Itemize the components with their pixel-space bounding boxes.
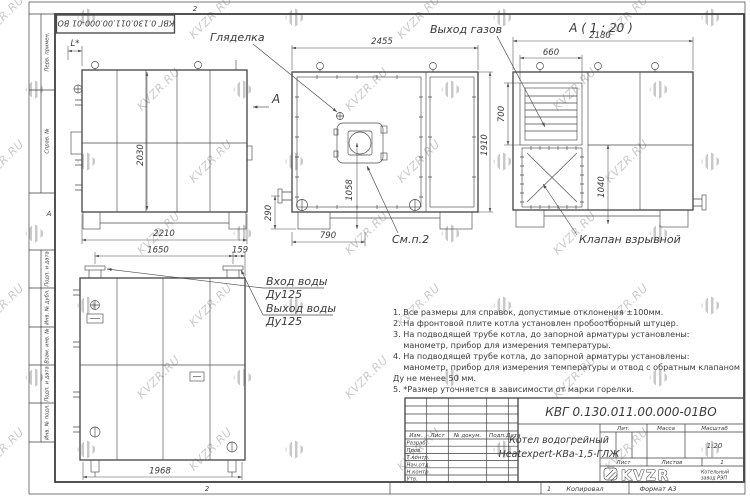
sheet-frame: Перв. примен. Справ. № Подп. и дата Инв.… [29,2,745,494]
dim-l: L* [71,39,80,49]
drawing-sheet: KVZR.RUKVZR.RUKVZR.RUKVZR.RUKVZR.RUKVZR.… [0,0,750,500]
dim-2455: 2455 [371,37,393,47]
explosion-valve-callout: Клапан взрывной [579,233,681,246]
strip-label: Взам. инв. № [45,328,51,363]
tb-row: Пров. [407,448,422,454]
tb-sheets-value: 1 [720,460,724,466]
zone-bottom: 2 [205,485,210,493]
note-line: манометр, прибор для измерения температу… [393,340,743,351]
note-line: манометр, прибор для измерения температу… [393,362,743,373]
kvzr-logo-text: KVZR [621,468,670,484]
strip-label: Перв. примен. [45,33,51,72]
doc-number-rotated: КВГ 0.130.011.00.000-01 ВО [58,19,175,28]
side-view: L* 2030 2210 А [68,39,280,244]
section-arrow-label: А [271,92,280,106]
tb-scale-header: Масштаб [701,426,728,432]
water-inlet-dn: Ду125 [265,288,302,301]
dim-2180: 2180 [589,31,611,41]
strip-label: Подп. и дата [45,366,51,401]
kvzr-logo-sub2: завод РЭП [701,476,727,482]
note-line: Ду не менее 50 мм. [393,373,743,384]
notes: 1. Все размеры для справок, допустимые о… [393,307,743,395]
tb-col: Подп. [489,433,506,439]
kopiroval-label: Копировал [566,485,603,493]
dim-1058: 1058 [345,179,355,201]
dim-2210: 2210 [153,229,175,239]
tb-name-line1: Котел водогрейный [509,435,609,446]
kvzr-logo-icon [604,468,618,481]
zone-top: 2 [193,5,198,13]
tb-mass-header: Масса [657,426,675,432]
tb-row: Т.контр. [407,455,430,461]
dim-790: 790 [320,231,336,241]
dim-1040: 1040 [597,176,607,198]
bottom-view: 1650 159 1968 Вход воды Ду125 Выход воды… [73,246,336,481]
format-label: Формат А3 [639,485,676,493]
tb-row: Н.контр. [407,470,431,476]
bolt-ticks [295,75,476,209]
dim-1650: 1650 [147,246,169,256]
tb-scale-value: 1:20 [707,442,723,450]
water-outlet-dn: Ду125 [265,315,302,328]
drawing-canvas: Перв. примен. Справ. № Подп. и дата Инв.… [0,0,750,500]
tb-row: Разраб. [407,441,428,447]
zone-left: А [46,210,52,218]
tb-row: Утв. [407,477,418,483]
dim-1910: 1910 [480,134,490,156]
dim-700: 700 [497,106,507,122]
dim-290: 290 [264,205,274,221]
tb-col: № докум. [453,433,482,439]
tb-sheets-label: Листов [661,460,683,466]
strip-label: Инв. № подл. [45,404,51,440]
strip-label: Подп. и дата [45,251,51,286]
note-line: 1. Все размеры для справок, допустимые о… [393,307,743,318]
tb-row: Нач.отд. [407,462,431,468]
tb-col: Лист [429,433,445,439]
dim-660: 660 [543,48,559,58]
front-view: 2455 1910 1058 790 290 Гляделка См.п.2 [210,31,493,246]
tb-designation: КВГ 0.130.011.00.000-01ВО [545,405,716,419]
gas-outlet-callout: Выход газов [430,23,502,36]
water-outlet-callout: Выход воды [266,302,336,315]
water-inlet-callout: Вход воды [266,275,328,288]
sheet-zone: 1 [547,485,551,493]
tb-lit-header: Лит. [616,426,630,432]
strip-label: Справ. № [45,128,51,153]
note-line: 3. На подводящей трубе котла, до запорно… [393,329,743,340]
note-line: 2. На фронтовой плите котла установлен п… [393,318,743,329]
tb-sheet-label: Лист [615,460,631,466]
dim-159: 159 [232,246,248,256]
note-line: 4. На подводящей трубе котла, до запорно… [393,351,743,362]
dim-1968: 1968 [149,467,171,477]
kvzr-logo-sub1: Котельный [701,470,729,476]
dim-2030: 2030 [136,144,146,166]
sight-glass-callout: Гляделка [210,31,265,44]
note-line: 5. *Размер уточняется в зависимости от м… [393,384,743,395]
see-note-callout: См.п.2 [392,233,429,246]
tb-col: Изм. [409,433,422,439]
strip-label: Инв. № дубл. [45,289,51,325]
title-block: Изм. Лист № докум. Подп. Дата Разраб. Пр… [405,398,744,484]
